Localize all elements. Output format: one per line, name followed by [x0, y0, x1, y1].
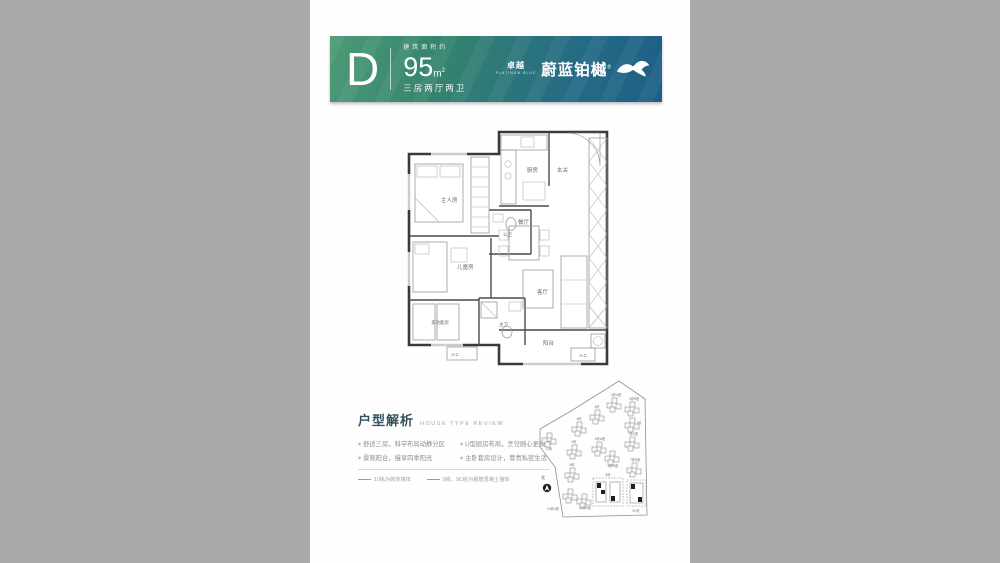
wall-legend: 10栋为砌体墙体 9栋、9C栋为钢筋混凝土墙体 [358, 469, 550, 483]
building-label: 7栋A座 [628, 431, 639, 436]
room-label-children: 儿童房 [457, 263, 474, 271]
brand-prefix-block: 卓越 PLATINUM BLUE [496, 62, 537, 76]
wall-line-sample [358, 479, 371, 480]
diamond-bullet-icon: ◆ [358, 441, 361, 446]
legend-item: 9栋、9C栋为钢筋混凝土墙体 [427, 476, 510, 483]
building-label: 10栋A座 [547, 506, 560, 511]
room-label-guest-bath: 公卫 [503, 232, 512, 237]
room-label-kitchen: 厨房 [527, 166, 539, 174]
building-label: 8栋 [570, 462, 576, 467]
highlighted-building-9: 9栋 [593, 472, 623, 506]
building-label: 5栋 [572, 439, 578, 444]
building-label: 1栋 [637, 420, 643, 425]
right-gray-panel [690, 0, 1000, 563]
review-title: 户型解析 [358, 410, 414, 429]
bullet-item: ◆舒适三房，科学布局动静分区 [358, 439, 454, 448]
building-label: 2栋A座 [611, 392, 622, 397]
building-label: 9C栋 [632, 508, 640, 513]
brand-name: 蔚蓝铂樾 [541, 62, 607, 79]
room-label-master: 主人房 [441, 196, 458, 204]
room-label-master-bath: 主卫 [499, 321, 508, 327]
floorplan-drawing: 主人房 公卫 儿童房 多功能房 主卫 厨房 玄关 餐厅 客厅 阳台 A.C A.… [405, 126, 617, 370]
ac-label-2: A.C [579, 353, 587, 358]
legend-item: 10栋为砌体墙体 [358, 476, 411, 483]
building-label: 9栋 [606, 472, 612, 477]
building-label: 6栋B座 [608, 463, 619, 468]
ac-label-1: A.C [451, 352, 459, 357]
building-label: 11栋 [546, 446, 553, 451]
area-value-row: 95 m2 [403, 53, 466, 81]
siteplan-map: 2栋A座 2栋B座 1栋 3栋 4栋 5栋 6栋A座 6栋B座 7栋A座 7栋B… [537, 367, 697, 522]
room-label-foyer: 玄关 [557, 166, 569, 174]
room-label-balcony: 阳台 [543, 339, 555, 347]
wall-line-sample [427, 479, 440, 480]
brand-logo: 卓越 PLATINUM BLUE 蔚蓝铂樾® [496, 36, 650, 102]
brand-prefix: 卓越 [507, 62, 525, 70]
banner-divider [390, 48, 391, 90]
building-label: 4栋 [577, 416, 583, 421]
diamond-bullet-icon: ◆ [460, 455, 463, 460]
area-unit: m2 [433, 68, 445, 80]
unit-layout: 三房两厅两卫 [403, 84, 466, 93]
building-label: 7栋B座 [630, 457, 641, 462]
brand-registered-mark: ® [607, 65, 611, 71]
brochure-page: D 建筑面积约 95 m2 三房两厅两卫 卓越 PLATINUM BLUE 蔚蓝… [310, 0, 690, 563]
area-prefix: 建筑面积约 [403, 45, 466, 51]
highlighted-building-9c: 9C栋 [627, 480, 646, 513]
diamond-bullet-icon: ◆ [460, 441, 463, 446]
diamond-bullet-icon: ◆ [358, 455, 361, 460]
north-indicator: 北 [541, 474, 551, 492]
building-label: 6栋A座 [595, 436, 606, 441]
area-block: 建筑面积约 95 m2 三房两厅两卫 [403, 45, 466, 94]
building-label: 10栋B座 [579, 505, 592, 510]
room-label-dining: 餐厅 [518, 218, 530, 226]
brand-name-block: 蔚蓝铂樾® [541, 58, 611, 80]
room-label-living: 客厅 [537, 288, 549, 296]
building-label: 3栋 [595, 404, 601, 409]
header-banner: D 建筑面积约 95 m2 三房两厅两卫 卓越 PLATINUM BLUE 蔚蓝… [330, 36, 662, 102]
room-label-multi: 多功能房 [431, 319, 449, 326]
review-subtitle: HOUSE TYPE REVIEW [420, 421, 504, 427]
building-label: 2栋B座 [629, 396, 640, 401]
area-value: 95 [403, 53, 433, 81]
bullet-item: ◆景观阳台，慢享四季阳光 [358, 453, 454, 462]
whale-tail-icon [616, 59, 650, 79]
brand-prefix-en: PLATINUM BLUE [496, 72, 537, 76]
left-gray-panel [0, 0, 310, 563]
unit-letter: D [346, 46, 380, 92]
north-label: 北 [541, 474, 546, 481]
